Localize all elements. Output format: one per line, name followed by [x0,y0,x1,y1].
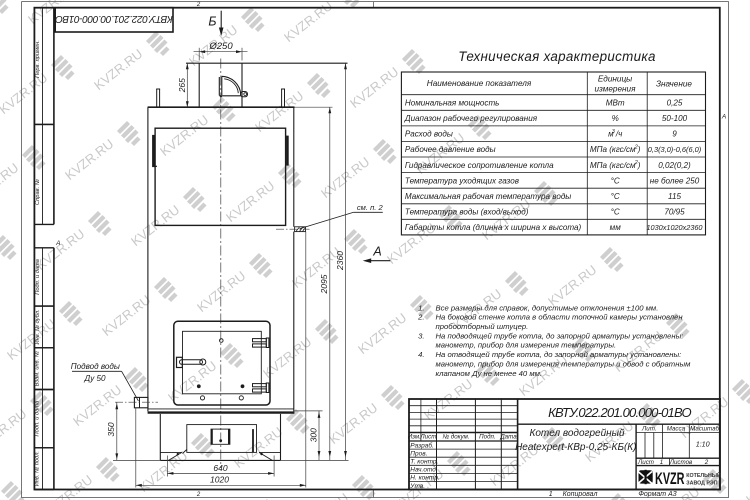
svg-text:9: 9 [672,130,677,139]
svg-text:Т. контр.: Т. контр. [410,459,438,466]
svg-text:Подп.: Подп. [479,434,495,441]
svg-text:KVZR.RU: KVZR.RU [231,424,285,471]
svg-text:Расход воды: Расход воды [405,130,453,139]
svg-text:Номинальная мощность: Номинальная мощность [405,99,500,108]
svg-text:Лист: Лист [419,434,436,441]
svg-text:м /ч: м /ч [608,130,623,139]
svg-text:Инв. № подл.: Инв. № подл. [35,451,41,486]
svg-text:3: 3 [612,129,615,135]
svg-text:°С: °С [611,176,620,185]
svg-text:Пров.: Пров. [410,450,427,457]
svg-text:0,25: 0,25 [667,99,683,108]
svg-text:КОТЕЛЬНЫЙ: КОТЕЛЬНЫЙ [686,471,721,479]
svg-text:KVZR: KVZR [655,470,685,488]
svg-text:Подвод воды: Подвод воды [71,362,120,371]
svg-text:А: А [372,245,381,259]
svg-text:KVZR.RU: KVZR.RU [260,334,314,381]
svg-text:Ду 50: Ду 50 [83,374,106,383]
svg-text:0,02(0,2): 0,02(0,2) [658,161,691,170]
svg-text:Все размеры для справок, допус: Все размеры для справок, допустимые откл… [436,303,659,312]
svg-text:2.: 2. [417,313,424,322]
svg-text:Изм.: Изм. [408,434,421,441]
svg-text:МПа (кгс/см ): МПа (кгс/см ) [590,145,641,154]
svg-text:1030х1020х2360: 1030х1020х2360 [647,223,703,232]
svg-text:Котел водогрейный: Котел водогрейный [529,428,625,439]
svg-text:Техническая характеристика: Техническая характеристика [458,49,655,64]
svg-text:На отводящей трубе котла, до з: На отводящей трубе котла, до запорной ар… [436,350,682,359]
svg-text:Листов: Листов [669,459,693,466]
svg-text:KVZR.RU: KVZR.RU [99,292,153,339]
svg-text:МВт: МВт [606,99,625,108]
svg-text:0,3(3,0)-0,6(6,0): 0,3(3,0)-0,6(6,0) [648,145,702,154]
svg-text:Копировал: Копировал [563,491,598,498]
svg-text:%: % [612,114,619,123]
svg-text:Справ. №: Справ. № [35,179,41,205]
svg-text:°С: °С [611,208,620,217]
svg-text:KVZR.RU: KVZR.RU [326,400,380,447]
svg-text:Перв. примен.: Перв. примен. [35,40,41,78]
svg-text:1: 1 [549,491,553,498]
svg-text:мм: мм [610,223,622,232]
svg-text:KVZR.RU: KVZR.RU [223,178,277,225]
svg-text:измерения: измерения [595,85,637,94]
svg-text:2: 2 [634,144,638,150]
svg-text:KVZR.RU: KVZR.RU [355,310,409,357]
svg-text:1.: 1. [418,303,424,312]
svg-text:KVZR.RU: KVZR.RU [0,160,21,207]
svg-text:Температура воды (вход/выход): Температура воды (вход/выход) [405,208,529,217]
svg-text:манометр, прибор для измерения: манометр, прибор для измерения температу… [436,359,692,368]
svg-text:Формат А3: Формат А3 [638,491,676,498]
svg-text:300: 300 [308,428,318,442]
svg-text:А: А [55,240,60,247]
svg-text:пробоотборный штуцер.: пробоотборный штуцер. [436,322,529,331]
svg-text:манометр, прибор для измерения: манометр, прибор для измерения температу… [436,341,617,350]
svg-text:50-100: 50-100 [662,114,688,123]
svg-text:Б: Б [208,15,216,29]
svg-text:Габариты котла (длинна х ширин: Габариты котла (длинна х ширина х высота… [405,223,582,232]
svg-text:KVZR.RU: KVZR.RU [33,226,87,273]
svg-text:Единицы: Единицы [598,75,632,84]
svg-text:клапаном Ду не менее 40 мм.: клапаном Ду не менее 40 мм. [436,369,543,378]
svg-text:KVZR.RU: KVZR.RU [347,64,401,111]
svg-text:Диапазон рабочего регулировани: Диапазон рабочего регулирования [404,114,538,123]
svg-text:На боковой стенке котла в обла: На боковой стенке котла в области топочн… [436,313,684,322]
svg-text:На подводящей трубе котла, до: На подводящей трубе котла, до запорной а… [436,331,684,340]
svg-text:KVZR.RU: KVZR.RU [194,268,248,315]
svg-text:KVZR.RU: KVZR.RU [0,406,29,453]
svg-text:KVZR.RU: KVZR.RU [41,472,95,500]
svg-text:А: А [721,114,726,121]
svg-text:Н. контр.: Н. контр. [410,475,440,482]
svg-text:640: 640 [213,463,227,473]
svg-text:Взам. инв. №: Взам. инв. № [35,351,41,386]
svg-text:Подп. и дата: Подп. и дата [35,259,41,295]
svg-text:Подп. и дата: Подп. и дата [35,401,41,437]
svg-text:Нач.отд.: Нач.отд. [410,466,438,474]
svg-text:Лист: Лист [637,459,654,466]
svg-text:КВТУ.022.201.00.000-01ВО: КВТУ.022.201.00.000-01ВО [548,405,691,420]
svg-text:Утв.: Утв. [409,483,425,490]
svg-text:2: 2 [196,492,201,498]
svg-text:Наименование показателя: Наименование показателя [427,79,532,88]
svg-text:KVZR.RU: KVZR.RU [743,460,750,500]
svg-text:KVZR.RU: KVZR.RU [70,382,124,429]
svg-text:4.: 4. [418,350,424,359]
svg-text:Температура уходящих газов: Температура уходящих газов [405,176,519,185]
svg-text:1:10: 1:10 [696,440,710,449]
svg-text:Лит.: Лит. [641,425,657,432]
svg-text:2095: 2095 [319,274,329,294]
svg-text:Разраб.: Разраб. [410,441,434,449]
svg-text:Ø250: Ø250 [208,41,233,52]
svg-text:2360: 2360 [335,251,345,271]
svg-text:KVZR.RU: KVZR.RU [297,490,351,500]
svg-text:KVZR.RU: KVZR.RU [281,0,335,45]
svg-text:Масса: Масса [667,425,686,432]
svg-text:KVZR.RU: KVZR.RU [545,262,599,309]
svg-text:№ докум.: № докум. [442,434,469,441]
svg-text:Heatexpert-КВр-0,25-КБ(К): Heatexpert-КВр-0,25-КБ(К) [515,442,636,453]
svg-text:KVZR.RU: KVZR.RU [62,136,116,183]
svg-text:265: 265 [177,78,187,93]
svg-text:2: 2 [634,160,638,166]
svg-text:Рабочее давление воды: Рабочее давление воды [405,145,496,154]
svg-text:2: 2 [704,459,709,466]
svg-text:KVZR.RU: KVZR.RU [157,112,211,159]
svg-text:Масштаб: Масштаб [690,425,719,432]
svg-text:1: 1 [660,459,663,466]
svg-text:350: 350 [106,422,116,436]
svg-text:°С: °С [611,192,620,201]
svg-text:3.: 3. [418,331,424,340]
svg-text:Инв. № дубл.: Инв. № дубл. [35,309,41,344]
svg-text:ЗАВОД РЭП: ЗАВОД РЭП [686,480,717,486]
svg-text:Максимальная рабочая температу: Максимальная рабочая температура воды [405,192,571,201]
svg-text:Значение: Значение [656,80,692,89]
svg-text:Дата: Дата [499,434,517,441]
svg-text:Гидравлическое сопротивление к: Гидравлическое сопротивление котла [405,161,554,170]
svg-text:KVZR.RU: KVZR.RU [4,316,58,363]
svg-text:KVZR.RU: KVZR.RU [136,448,190,495]
svg-text:КВТУ.022.201.00.000-01ВО: КВТУ.022.201.00.000-01ВО [55,13,173,24]
svg-text:см. п. 2: см. п. 2 [357,203,384,212]
svg-text:1020: 1020 [210,474,229,484]
svg-text:115: 115 [668,192,681,201]
svg-text:МПа (кгс/см ): МПа (кгс/см ) [590,161,641,170]
svg-text:KVZR.RU: KVZR.RU [91,46,145,93]
svg-text:не более 250: не более 250 [650,176,700,185]
svg-text:70/95: 70/95 [664,208,685,217]
